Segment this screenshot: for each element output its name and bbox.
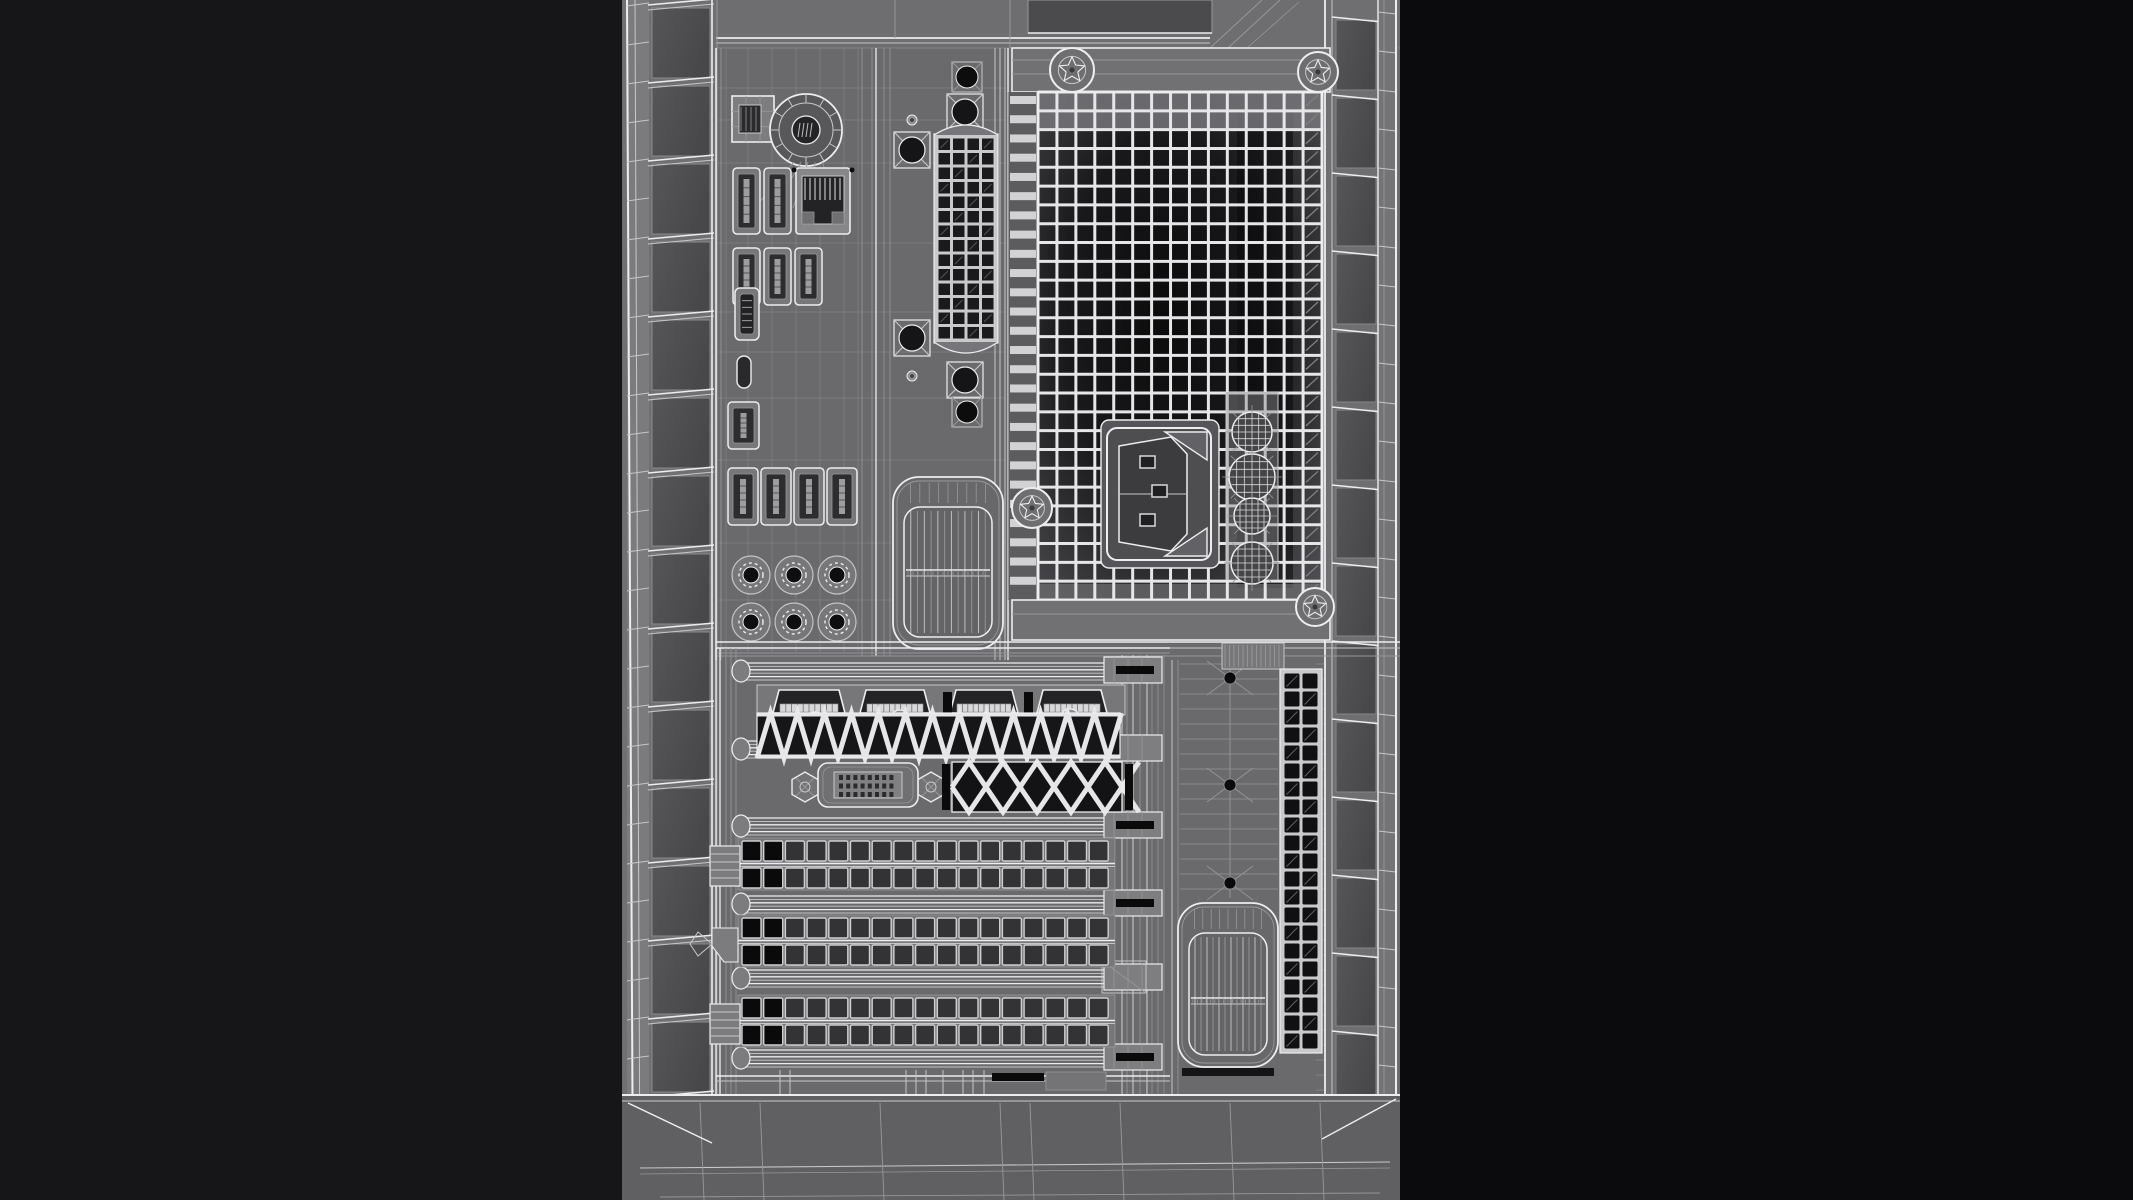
render-viewport — [0, 0, 2133, 1200]
expansion-section — [690, 648, 1170, 1098]
audio-jack — [732, 556, 770, 594]
top-panel — [712, 0, 1400, 48]
hdmi-port — [735, 288, 759, 340]
hex-jack-screw — [918, 772, 944, 802]
usb-port-7 — [728, 468, 758, 525]
fan-screw-emblem — [1298, 52, 1338, 92]
slat-band — [1222, 643, 1284, 669]
usb-port-10 — [827, 468, 857, 525]
audio-jack — [818, 603, 856, 641]
screw-hole — [952, 397, 982, 427]
fan-screw-emblem — [1050, 48, 1094, 92]
usb-port-8 — [761, 468, 791, 525]
audio-jack — [775, 556, 813, 594]
ethernet-port — [792, 168, 855, 235]
wireframe-tower-rear-render — [0, 0, 2133, 1200]
usb-port-9 — [794, 468, 824, 525]
thumbscrew-x — [894, 320, 930, 356]
diamond-vent — [942, 762, 1139, 812]
io-vent-grille — [893, 477, 1003, 649]
usb-port-5 — [795, 248, 822, 305]
fan-screw-emblem — [1012, 488, 1052, 528]
hex-jack-screw — [792, 772, 818, 802]
usb-port-6 — [728, 402, 759, 449]
usb-port-4 — [764, 248, 791, 305]
display-port-2 — [860, 690, 930, 713]
audio-jack — [818, 556, 856, 594]
thumbscrew-x — [947, 362, 983, 398]
blank-slot-cover-1 — [738, 838, 1115, 890]
mesh-vent-circle — [1224, 535, 1280, 591]
screw-hole — [952, 62, 982, 92]
right-vent-strip — [1280, 669, 1322, 1053]
usb-port-1 — [733, 168, 760, 234]
fan-screw-emblem — [1296, 588, 1334, 626]
usb-port-2 — [764, 168, 791, 234]
audio-jack — [732, 603, 770, 641]
psu-mesh-vents — [1222, 392, 1282, 591]
mesh-vent-circle — [1227, 491, 1277, 541]
ps2-port — [732, 96, 774, 142]
triangle-vent-row — [757, 713, 1122, 758]
center-vent-strip — [934, 125, 998, 353]
right-vent-grille — [1178, 903, 1278, 1067]
blank-slot-cover-3 — [738, 995, 1115, 1047]
left-vent-rail — [623, 0, 717, 1200]
dvi-port — [818, 763, 918, 807]
right-vent-rail — [1325, 0, 1398, 1200]
display-port-1 — [773, 690, 845, 713]
audio-jack — [775, 603, 813, 641]
oval-slot — [737, 356, 751, 388]
psu-power-inlet — [1101, 420, 1219, 568]
thumbscrew-x — [894, 132, 930, 168]
bottom-apron — [622, 1095, 1400, 1200]
blank-slot-cover-2 — [738, 915, 1115, 967]
